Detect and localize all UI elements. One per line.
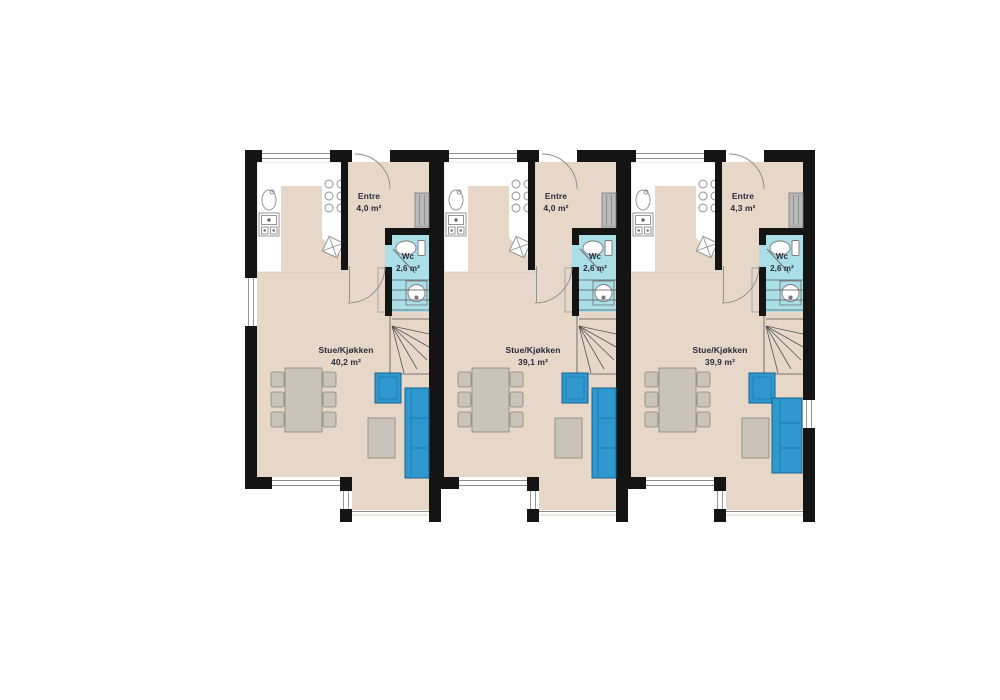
room-area: 40,2 m²: [318, 356, 373, 368]
entre-label: Entre 4,0 m²: [356, 190, 381, 215]
unit-1-left-window: [245, 278, 257, 326]
room-name: Stue/Kjøkken: [692, 344, 747, 356]
room-area: 39,9 m²: [692, 356, 747, 368]
room-name: Entre: [730, 190, 755, 202]
room-name: Entre: [543, 190, 568, 202]
room-area: 4,3 m²: [730, 202, 755, 214]
living-label: Stue/Kjøkken 39,9 m²: [692, 344, 747, 369]
room-area: 2,6 m²: [770, 263, 794, 275]
room-area: 2,6 m²: [396, 263, 420, 275]
wc-label: Wc 2,6 m²: [770, 251, 794, 274]
floor-plan-canvas: Entre 4,0 m² Wc 2,6 m² Stue/Kjøkken 40,2…: [0, 0, 1000, 700]
room-area: 2,6 m²: [583, 263, 607, 275]
room-name: Stue/Kjøkken: [505, 344, 560, 356]
unit-1-sofa: [405, 388, 429, 478]
room-name: Wc: [396, 251, 420, 263]
unit-3-right-window: [803, 400, 815, 428]
wc-label: Wc 2,6 m²: [583, 251, 607, 274]
room-name: Stue/Kjøkken: [318, 344, 373, 356]
room-name: Entre: [356, 190, 381, 202]
room-area: 39,1 m²: [505, 356, 560, 368]
room-area: 4,0 m²: [356, 202, 381, 214]
room-name: Wc: [770, 251, 794, 263]
unit-2-sofa: [592, 388, 616, 478]
wc-label: Wc 2,6 m²: [396, 251, 420, 274]
living-label: Stue/Kjøkken 39,1 m²: [505, 344, 560, 369]
living-label: Stue/Kjøkken 40,2 m²: [318, 344, 373, 369]
unit-3: Entre 4,3 m² Wc 2,6 m² Stue/Kjøkken 39,9…: [619, 150, 815, 522]
room-name: Wc: [583, 251, 607, 263]
room-area: 4,0 m²: [543, 202, 568, 214]
unit-3-sofa: [772, 398, 802, 473]
entre-label: Entre 4,0 m²: [543, 190, 568, 215]
entre-label: Entre 4,3 m²: [730, 190, 755, 215]
unit-2: Entre 4,0 m² Wc 2,6 m² Stue/Kjøkken 39,1…: [432, 150, 628, 522]
unit-1: Entre 4,0 m² Wc 2,6 m² Stue/Kjøkken 40,2…: [245, 150, 441, 522]
